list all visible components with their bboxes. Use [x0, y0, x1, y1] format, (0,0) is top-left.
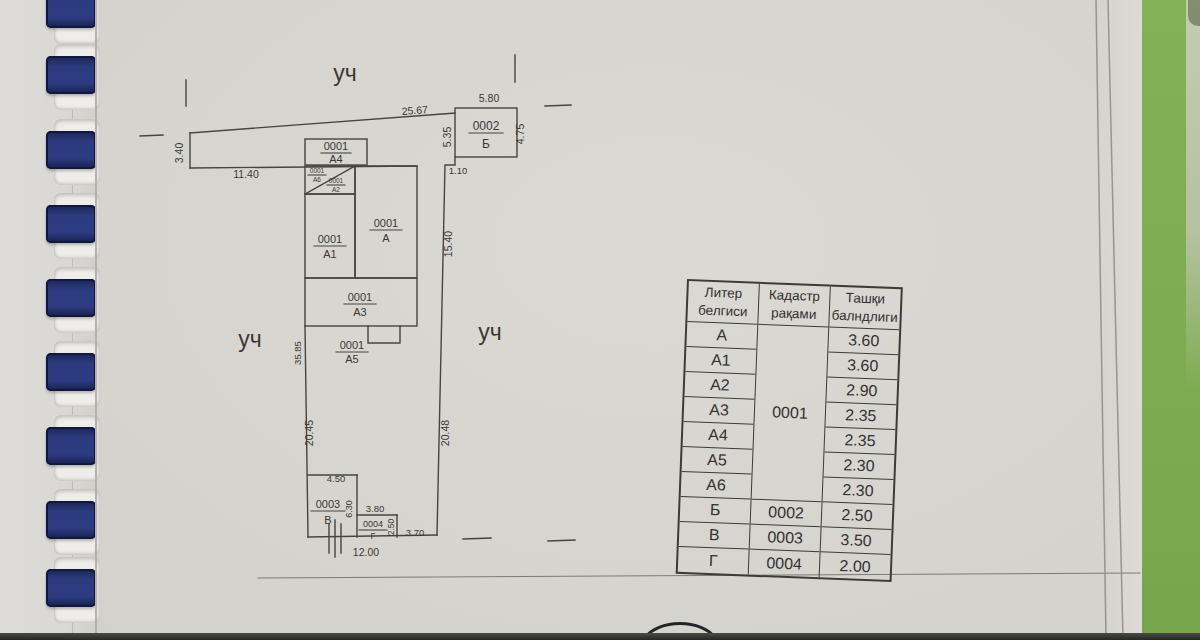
- dim-left-lower: 20.45: [303, 420, 315, 446]
- plan-outlines: [140, 0, 1140, 640]
- cell-liter: А: [686, 322, 757, 350]
- cell-height: 2.35: [824, 427, 895, 455]
- unit-a5-code: 0001: [340, 339, 364, 351]
- dim-step: 1.10: [449, 165, 468, 176]
- cell-liter: А4: [683, 422, 754, 450]
- header-liter: Литер белгиси: [687, 281, 759, 325]
- unit-g-code: 0004: [363, 519, 383, 529]
- unit-a1-code: 0001: [318, 233, 342, 245]
- cell-kadastr: 0004: [749, 550, 820, 578]
- dim-strip-left: 3.40: [173, 143, 185, 164]
- cell-height: 2.30: [823, 477, 894, 505]
- unit-a4-letter: А4: [329, 153, 342, 165]
- unit-a5-letter: А5: [345, 353, 358, 365]
- dim-strip-top: 25.67: [401, 103, 428, 117]
- cell-liter: А3: [684, 397, 755, 425]
- dim-bottom: 12.00: [353, 546, 379, 558]
- liter-table: Литер белгисиАА1А2А3А4А5А6БВГКадастр рақ…: [676, 279, 903, 582]
- cell-height: 3.60: [828, 327, 899, 355]
- unit-v-letter: В: [324, 514, 331, 526]
- dim-strip-bottom: 11.40: [233, 168, 259, 180]
- cell-liter: А1: [685, 347, 756, 375]
- plot-label-top: уч: [333, 60, 356, 86]
- cell-liter: Б: [680, 497, 751, 525]
- unit-a1-letter: А1: [323, 248, 336, 260]
- cell-liter: В: [679, 522, 750, 550]
- cell-height: 2.90: [826, 377, 897, 405]
- unit-a6-code: 0001: [310, 167, 325, 174]
- plot-label-right: уч: [478, 319, 501, 345]
- bottom-shadow-band: [0, 633, 1200, 640]
- dim-bottom-right-seg: 3.70: [406, 527, 425, 538]
- unit-v-code: 0003: [316, 498, 340, 510]
- cell-kadastr: 0002: [751, 500, 822, 528]
- cell-liter: А5: [682, 447, 753, 475]
- cell-height: 2.00: [820, 552, 891, 580]
- dim-g-right: 2.50: [386, 518, 396, 535]
- unit-a6-letter: А6: [313, 176, 321, 183]
- unit-g-letter: Г: [371, 531, 376, 541]
- dim-b-left: 5.35: [441, 127, 453, 148]
- dim-b-top: 5.80: [479, 92, 500, 104]
- unit-a4-code: 0001: [324, 140, 348, 152]
- cell-height: 2.30: [823, 452, 894, 480]
- cell-kadastr: 0003: [750, 525, 821, 553]
- unit-a2-letter: А2: [332, 186, 340, 193]
- cell-height: 3.50: [821, 527, 892, 555]
- dim-v-top: 4.50: [327, 473, 346, 484]
- cell-kadastr-merged: 0001: [752, 325, 829, 503]
- cell-height: 2.35: [825, 402, 896, 430]
- cell-height: 2.50: [822, 502, 893, 530]
- unit-b-letter: Б: [482, 137, 490, 151]
- dim-v-right: 6.30: [344, 500, 354, 518]
- cell-height: 3.60: [827, 352, 898, 380]
- site-plan-drawing: уч уч уч 25.67 5.80 3.40 11.40 5.35 4.75…: [0, 0, 1200, 640]
- unit-a3-letter: А3: [353, 306, 366, 318]
- table-col-liter: Литер белгисиАА1А2А3А4А5А6БВГ: [678, 281, 760, 575]
- unit-a-code: 0001: [374, 217, 398, 229]
- scanned-document-photo: уч уч уч 25.67 5.80 3.40 11.40 5.35 4.75…: [0, 0, 1200, 640]
- unit-a3-code: 0001: [348, 291, 372, 303]
- cell-liter: А2: [684, 372, 755, 400]
- dim-right-upper: 15.40: [442, 231, 454, 257]
- unit-a2-code: 0001: [329, 177, 344, 184]
- cell-liter: А6: [681, 472, 752, 500]
- header-kadastr: Кадастр рақами: [758, 284, 830, 328]
- dim-left-upper: 35.85: [292, 341, 303, 365]
- table-col-kadastr: Кадастр рақами0001000200030004: [749, 284, 831, 578]
- unit-a-letter: А: [382, 232, 390, 244]
- cell-liter: Г: [678, 547, 749, 575]
- plot-label-left: уч: [238, 326, 261, 352]
- table-col-height: Ташқи балндлиги3.603.602.902.352.352.302…: [820, 287, 901, 580]
- dim-b-right: 4.75: [514, 124, 526, 145]
- plan-labels: уч уч уч 25.67 5.80 3.40 11.40 5.35 4.75…: [173, 60, 526, 558]
- dim-g-top: 3.80: [366, 503, 385, 514]
- dim-right-lower: 20.48: [439, 420, 451, 446]
- unit-b-code: 0002: [473, 119, 500, 133]
- header-height: Ташқи балндлиги: [829, 287, 901, 331]
